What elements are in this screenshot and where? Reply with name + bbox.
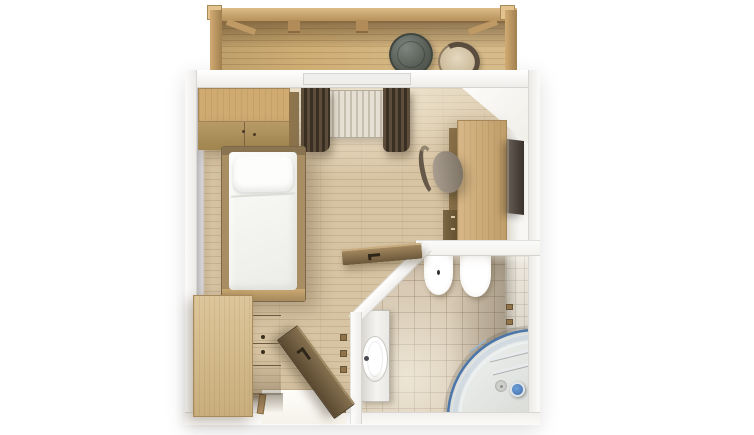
pergola-post-left [210, 10, 222, 72]
dresser-shadow [253, 393, 283, 413]
curtain-left [301, 88, 330, 152]
drawer-seam [253, 365, 281, 366]
curtain-right [383, 88, 410, 152]
drawer-seam [253, 343, 281, 344]
dresser-front [253, 295, 281, 395]
pergola-post-right [505, 10, 517, 72]
drawer-seam [253, 315, 281, 316]
door-handle [368, 254, 372, 260]
wardrobe-knob [242, 130, 245, 133]
wall-tv [507, 139, 524, 215]
shower-fitting [510, 382, 525, 397]
coat-hook [340, 334, 347, 341]
pergola-rafter [356, 20, 368, 33]
wardrobe-knob [253, 133, 256, 136]
dresser-top [193, 295, 253, 417]
dresser-knob [261, 350, 265, 354]
dresser-knob [261, 335, 265, 339]
floorplan-render [0, 0, 754, 435]
wardrobe-side-panel [289, 92, 299, 150]
coat-hook [340, 366, 347, 373]
coat-hook [340, 350, 347, 357]
balcony-window [303, 73, 411, 85]
bathroom-wall-top [416, 240, 540, 256]
drawer-pull [451, 216, 455, 218]
bathroom-wall-left [350, 312, 362, 424]
towel-hook [506, 304, 513, 310]
bed-pillow [233, 155, 294, 192]
towel-hook [506, 319, 513, 325]
pergola-rafter [288, 20, 300, 33]
wardrobe-top [198, 88, 290, 122]
drawer-pull [451, 228, 455, 230]
desk [457, 120, 507, 247]
